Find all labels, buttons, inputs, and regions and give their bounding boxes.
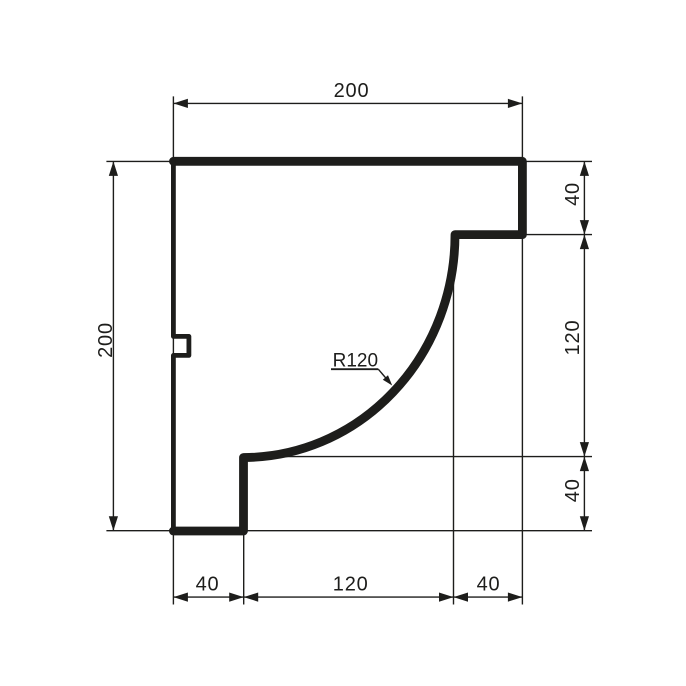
svg-text:40: 40 — [562, 478, 584, 502]
svg-text:40: 40 — [477, 573, 501, 595]
svg-text:200: 200 — [95, 322, 117, 358]
svg-text:40: 40 — [562, 182, 584, 206]
svg-text:40: 40 — [196, 573, 220, 595]
svg-text:120: 120 — [333, 573, 369, 595]
svg-text:200: 200 — [334, 80, 370, 102]
svg-text:R120: R120 — [333, 350, 378, 371]
svg-text:120: 120 — [562, 320, 584, 356]
